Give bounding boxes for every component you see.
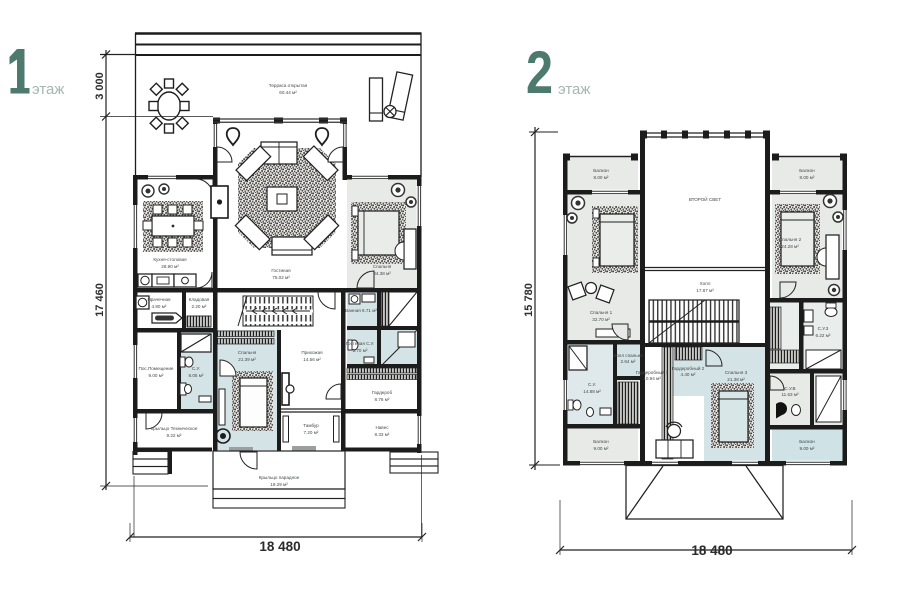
svg-text:9.00 м²: 9.00 м² — [149, 373, 164, 378]
svg-text:2: 2 — [526, 39, 553, 106]
svg-text:Спальня 1: Спальня 1 — [590, 310, 613, 315]
svg-text:8.33 м²: 8.33 м² — [375, 432, 390, 437]
svg-text:8.00 м²: 8.00 м² — [800, 175, 815, 180]
svg-text:Спальня: Спальня — [238, 350, 257, 355]
svg-text:ВТОРОЙ СВЕТ: ВТОРОЙ СВЕТ — [689, 195, 721, 202]
svg-text:21.38 м²: 21.38 м² — [727, 377, 745, 382]
svg-text:Крыльцо парадное: Крыльцо парадное — [259, 475, 300, 480]
svg-text:17 460: 17 460 — [94, 283, 106, 317]
svg-text:3.70 м²: 3.70 м² — [353, 348, 368, 353]
svg-text:Гостиная: Гостиная — [271, 268, 291, 273]
svg-text:С.У.: С.У. — [588, 382, 596, 387]
svg-text:Балкон: Балкон — [593, 168, 609, 173]
svg-text:С.У.: С.У. — [192, 366, 200, 371]
svg-text:10.94 м²: 10.94 м² — [643, 376, 661, 381]
svg-text:15 780: 15 780 — [523, 283, 535, 317]
svg-text:6.22 м²: 6.22 м² — [816, 333, 831, 338]
svg-text:8.76 м²: 8.76 м² — [375, 397, 390, 402]
svg-text:Балкон: Балкон — [799, 439, 815, 444]
svg-text:этаж: этаж — [558, 81, 590, 98]
svg-text:8.00 м²: 8.00 м² — [594, 175, 609, 180]
svg-text:Балкон: Балкон — [593, 439, 609, 444]
svg-text:Балкон: Балкон — [799, 168, 815, 173]
svg-text:18 480: 18 480 — [691, 543, 732, 558]
svg-text:34.38 м²: 34.38 м² — [373, 271, 391, 276]
svg-text:17.87 м²: 17.87 м² — [696, 288, 714, 293]
svg-text:Крыльцо Техническое: Крыльцо Техническое — [151, 426, 198, 431]
svg-text:2.64 м²: 2.64 м² — [621, 359, 636, 364]
svg-text:4.80 м²: 4.80 м² — [152, 304, 167, 309]
svg-text:7.20 м²: 7.20 м² — [304, 430, 319, 435]
svg-text:14.56 м²: 14.56 м² — [303, 357, 321, 362]
svg-text:75.02 м²: 75.02 м² — [272, 275, 290, 280]
svg-text:21.39 м²: 21.39 м² — [238, 357, 256, 362]
svg-text:60.44 м²: 60.44 м² — [279, 90, 297, 95]
svg-text:Пос.Помещение: Пос.Помещение — [139, 366, 174, 371]
svg-text:Гардероб: Гардероб — [372, 390, 393, 395]
svg-text:8.05 м²: 8.05 м² — [189, 373, 204, 378]
svg-text:9.00 м²: 9.00 м² — [800, 446, 815, 451]
svg-text:С.У.3: С.У.3 — [818, 326, 829, 331]
svg-text:Холл спальни: Холл спальни — [613, 353, 643, 358]
svg-text:32.70 м²: 32.70 м² — [592, 317, 610, 322]
svg-text:Гостевая С.У.: Гостевая С.У. — [346, 341, 375, 346]
svg-text:14.88 м²: 14.88 м² — [583, 389, 601, 394]
svg-text:этаж: этаж — [32, 81, 64, 98]
svg-text:9.22 м²: 9.22 м² — [167, 433, 182, 438]
svg-text:24.28 м²: 24.28 м² — [781, 244, 799, 249]
svg-text:19.29 м²: 19.29 м² — [270, 482, 288, 487]
svg-text:2.20 м²: 2.20 м² — [192, 304, 207, 309]
svg-text:Кухня-столовая: Кухня-столовая — [153, 257, 187, 262]
svg-text:Тамбур: Тамбур — [303, 423, 319, 428]
svg-text:18 480: 18 480 — [259, 539, 300, 554]
svg-text:С.У.В: С.У.В — [784, 386, 795, 391]
svg-text:Терраса открытая: Терраса открытая — [269, 83, 308, 88]
svg-text:28.90 м²: 28.90 м² — [161, 264, 179, 269]
svg-text:Ванная 6.71 м²: Ванная 6.71 м² — [345, 308, 377, 313]
svg-text:9.00 м²: 9.00 м² — [594, 446, 609, 451]
svg-text:3 000: 3 000 — [94, 72, 106, 100]
svg-text:Прихожая: Прихожая — [301, 350, 323, 355]
svg-text:Навес: Навес — [375, 425, 389, 430]
svg-text:Кладовая: Кладовая — [189, 297, 210, 302]
svg-text:4.40 м²: 4.40 м² — [681, 372, 696, 377]
svg-text:Холл: Холл — [700, 281, 711, 286]
svg-text:Спальня 3: Спальня 3 — [725, 370, 748, 375]
svg-text:Спальня: Спальня — [373, 264, 392, 269]
svg-text:Гардеробный 2: Гардеробный 2 — [672, 365, 705, 371]
svg-text:Прачечная: Прачечная — [147, 297, 171, 302]
svg-text:Гардеробный 1: Гардеробный 1 — [636, 369, 669, 375]
svg-text:11.63 м²: 11.63 м² — [781, 392, 799, 397]
svg-text:Спальня 2: Спальня 2 — [779, 237, 802, 242]
